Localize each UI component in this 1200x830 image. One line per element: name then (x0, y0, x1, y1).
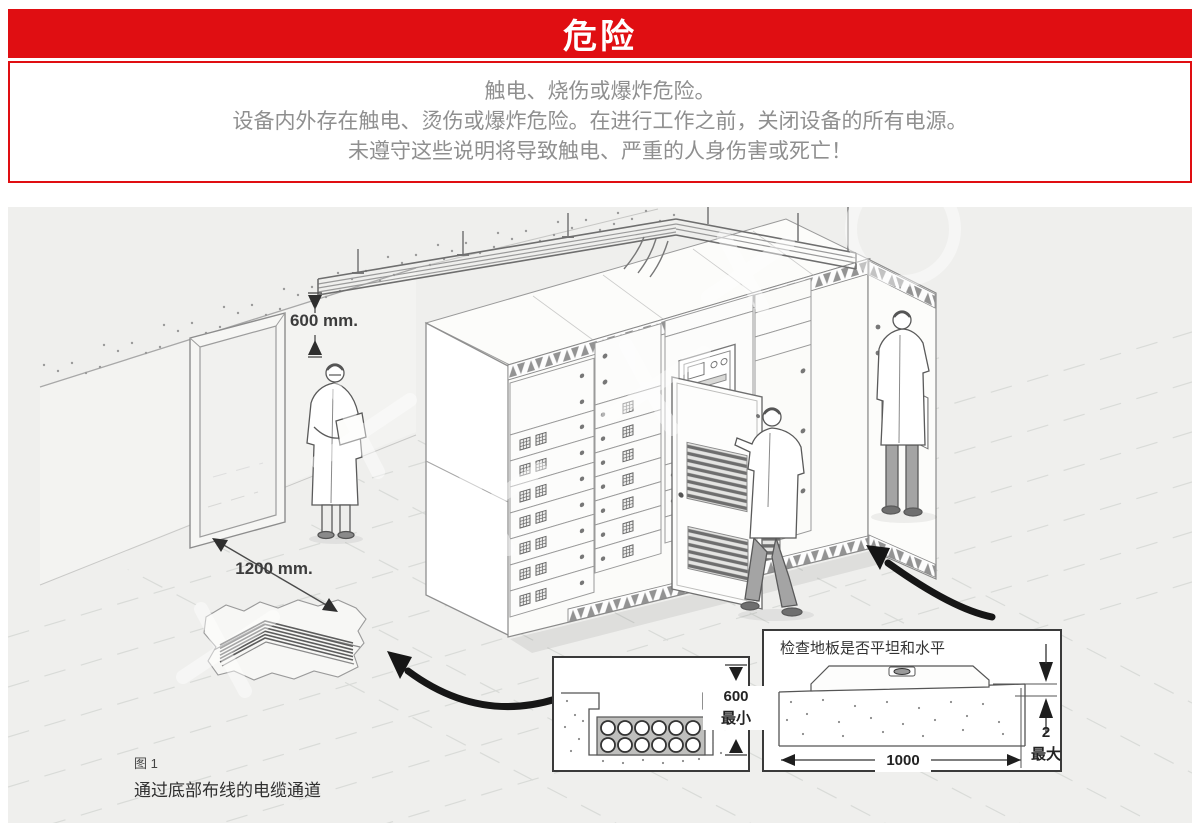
danger-banner: 危险 (8, 9, 1192, 58)
danger-title: 危险 (563, 9, 637, 58)
floor-width-label: 1000 (875, 750, 931, 772)
channel-depth-label: 600 最小 (703, 686, 769, 730)
floor-check-title: 检查地板是否平坦和水平 (780, 637, 945, 658)
warning-line-2: 设备内外存在触电、烫伤或爆炸危险。在进行工作之前，关闭设备的所有电源。 (233, 107, 968, 137)
floor-tolerance-label: 2 最大 (1016, 722, 1076, 766)
figure-number: 图 1 (134, 753, 158, 772)
installation-illustration (8, 207, 1192, 823)
warning-box: 触电、烧伤或爆炸危险。 设备内外存在触电、烫伤或爆炸危险。在进行工作之前，关闭设… (8, 61, 1192, 183)
installation-figure: 600 mm. 1200 mm. 图 1 通过底部布线的电缆通道 600 最小 … (8, 207, 1192, 823)
aisle-width-label: 1200 mm. (224, 559, 324, 579)
room-door (190, 313, 285, 548)
warning-line-3: 未遵守这些说明将导致触电、严重的人身伤害或死亡！ (348, 137, 852, 167)
warning-line-1: 触电、烧伤或爆炸危险。 (485, 77, 716, 107)
trench-arrow (387, 651, 556, 707)
figure-caption: 通过底部布线的电缆通道 (134, 776, 321, 801)
manual-page: 危险 触电、烧伤或爆炸危险。 设备内外存在触电、烫伤或爆炸危险。在进行工作之前，… (0, 0, 1200, 830)
ceiling-clearance-label: 600 mm. (284, 311, 364, 331)
